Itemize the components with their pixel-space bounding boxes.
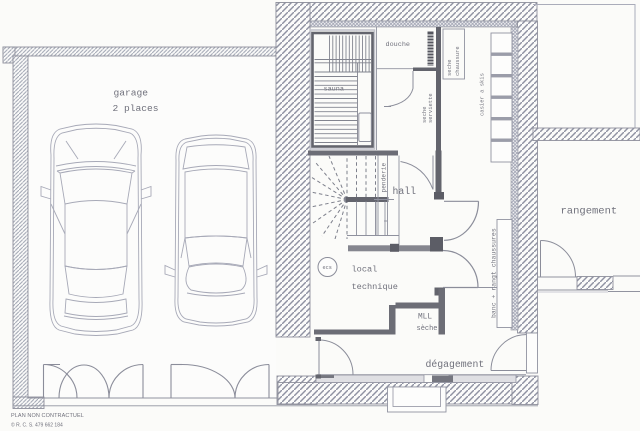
- svg-text:garage: garage: [114, 88, 149, 99]
- svg-text:PLAN NON CONTRACTUEL: PLAN NON CONTRACTUEL: [11, 413, 84, 419]
- svg-text:hall: hall: [393, 186, 417, 197]
- svg-text:dégagement: dégagement: [426, 359, 485, 370]
- svg-text:casier a skis: casier a skis: [479, 73, 486, 116]
- svg-text:© R. C. S. 479 662 184: © R. C. S. 479 662 184: [11, 422, 63, 429]
- svg-text:douche: douche: [386, 41, 410, 49]
- svg-text:rangement: rangement: [561, 206, 618, 218]
- svg-text:ecs: ecs: [323, 265, 332, 271]
- svg-text:sauna: sauna: [324, 86, 344, 94]
- svg-text:2 places: 2 places: [113, 103, 159, 114]
- svg-text:chaussure: chaussure: [454, 46, 461, 76]
- svg-text:local: local: [352, 265, 378, 275]
- svg-text:seche: seche: [446, 59, 453, 76]
- svg-text:sèche: sèche: [417, 325, 438, 333]
- svg-text:technique: technique: [352, 282, 398, 292]
- svg-text:penderie: penderie: [381, 163, 388, 193]
- svg-text:MLL: MLL: [418, 314, 432, 322]
- svg-text:serviette: serviette: [427, 93, 434, 123]
- svg-text:banc + rangt chaussures: banc + rangt chaussures: [491, 228, 498, 318]
